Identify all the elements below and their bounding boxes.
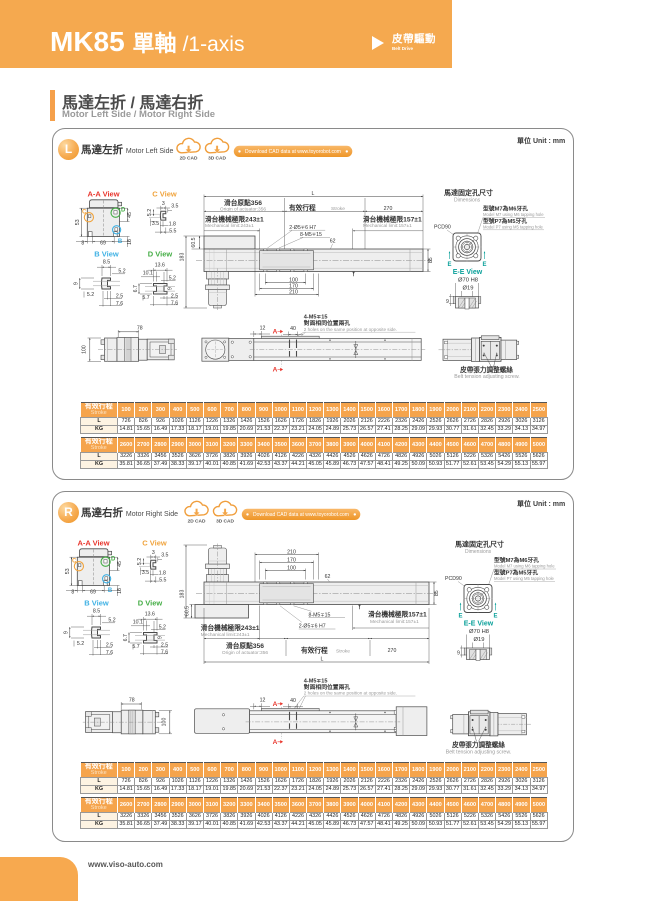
svg-text:5.5: 5.5 (169, 228, 176, 234)
svg-text:Origin of actuator:356: Origin of actuator:356 (220, 207, 266, 213)
svg-text:10.1: 10.1 (143, 270, 153, 276)
svg-text:40: 40 (290, 698, 296, 704)
svg-text:85: 85 (428, 257, 434, 263)
svg-text:12: 12 (260, 698, 266, 704)
svg-text:Dimensions: Dimensions (454, 198, 481, 204)
svg-text:12: 12 (260, 325, 266, 331)
svg-text:PCD90: PCD90 (445, 576, 462, 582)
svg-text:B View: B View (94, 250, 119, 259)
svg-text:A: A (273, 739, 278, 746)
svg-text:對面相同位置兩孔: 對面相同位置兩孔 (304, 683, 351, 691)
svg-text:2-Ø5∓6 H7: 2-Ø5∓6 H7 (299, 624, 326, 630)
svg-text:85: 85 (434, 590, 440, 596)
svg-text:3D CAD: 3D CAD (208, 155, 226, 161)
svg-text:7.6: 7.6 (116, 301, 123, 307)
svg-text:78: 78 (137, 326, 143, 332)
svg-text:皮帶張力調整螺絲: 皮帶張力調整螺絲 (452, 740, 505, 749)
svg-text:E-E View: E-E View (453, 269, 483, 276)
svg-text:210: 210 (289, 289, 298, 295)
svg-text:Mechanical limit:243±1: Mechanical limit:243±1 (205, 223, 254, 229)
svg-text:2-Ø5∓6 H7: 2-Ø5∓6 H7 (289, 225, 316, 231)
svg-text:2 holes on the same position a: 2 holes on the same position at opposite… (304, 691, 397, 696)
svg-text:Ø19: Ø19 (463, 286, 474, 292)
svg-text:5.7: 5.7 (142, 295, 149, 301)
svg-text:60.5: 60.5 (191, 237, 197, 247)
svg-text:滑台原點356: 滑台原點356 (226, 641, 264, 650)
svg-text:270: 270 (384, 206, 393, 212)
svg-text:3D CAD: 3D CAD (216, 518, 234, 524)
svg-text:Belt tension adjusting screw.: Belt tension adjusting screw. (446, 749, 511, 755)
svg-text:A: A (273, 329, 278, 336)
svg-text:69: 69 (100, 241, 106, 247)
svg-text:A-A View: A-A View (87, 190, 119, 199)
svg-text:Stroke: Stroke (336, 649, 350, 655)
svg-text:L: L (321, 656, 324, 662)
svg-text:滑台機械極限157±1: 滑台機械極限157±1 (368, 610, 427, 619)
svg-text:3: 3 (162, 201, 165, 207)
svg-text:Download CAD data at www.toyor: Download CAD data at www.toyorobot.com (253, 512, 349, 518)
svg-text:C View: C View (152, 190, 177, 199)
svg-text:1.8: 1.8 (169, 221, 176, 227)
svg-text:Dimensions: Dimensions (465, 549, 492, 555)
svg-text:Model M7 using M6 tapping hole: Model M7 using M6 tapping hole (494, 564, 555, 569)
svg-text:6.7: 6.7 (133, 285, 139, 292)
svg-text:2 holes on the same position a: 2 holes on the same position at opposite… (304, 327, 397, 332)
svg-text:有效行程: 有效行程 (301, 646, 328, 655)
svg-text:Belt tension adjusting screw.: Belt tension adjusting screw. (454, 374, 519, 380)
svg-text:E: E (458, 614, 462, 620)
svg-text:3.5: 3.5 (171, 203, 178, 209)
svg-text:Download CAD data at www.toyor: Download CAD data at www.toyorobot.com (245, 149, 341, 155)
svg-text:2D CAD: 2D CAD (188, 518, 206, 524)
svg-text:Stroke: Stroke (331, 206, 345, 212)
svg-text:2.5: 2.5 (171, 294, 178, 300)
svg-text:Model P7 using M5 tapping hole: Model P7 using M5 tapping hole (494, 576, 554, 581)
svg-text:183: 183 (179, 253, 185, 262)
svg-text:對面相同位置兩孔: 對面相同位置兩孔 (304, 319, 351, 327)
svg-text:9: 9 (457, 651, 460, 657)
svg-text:滑台原點356: 滑台原點356 (224, 198, 262, 207)
svg-text:4-M5∓15: 4-M5∓15 (304, 315, 328, 321)
svg-text:270: 270 (388, 648, 397, 654)
svg-text:Mechanical limit:157±1: Mechanical limit:157±1 (363, 223, 412, 229)
svg-text:210: 210 (287, 549, 296, 555)
svg-text:Model P7 using M5 tapping hole: Model P7 using M5 tapping hole (483, 224, 543, 229)
svg-text:8-M5∓15: 8-M5∓15 (309, 612, 331, 618)
svg-text:13.6: 13.6 (155, 263, 165, 269)
svg-text:7.6: 7.6 (171, 301, 178, 307)
svg-text:60.5: 60.5 (185, 606, 191, 616)
svg-text:8: 8 (81, 241, 84, 247)
svg-text:D View: D View (148, 250, 173, 259)
svg-text:62: 62 (330, 238, 336, 244)
svg-text:滑台機械極限243±1: 滑台機械極限243±1 (201, 623, 260, 632)
svg-text:B: B (118, 239, 123, 245)
svg-text:馬達固定孔尺寸: 馬達固定孔尺寸 (444, 188, 493, 197)
svg-text:183: 183 (179, 590, 185, 599)
svg-text:馬達固定孔尺寸: 馬達固定孔尺寸 (455, 540, 504, 549)
svg-text:5.2: 5.2 (87, 292, 94, 298)
svg-text:Mechanical limit:243±1: Mechanical limit:243±1 (201, 632, 250, 638)
svg-text:100: 100 (287, 565, 296, 571)
svg-text:18: 18 (127, 239, 133, 245)
svg-text:Model M7 using M6 tapping hole: Model M7 using M6 tapping hole (483, 212, 544, 217)
svg-text:Ø70 H8: Ø70 H8 (458, 278, 478, 284)
svg-text:4-M5∓15: 4-M5∓15 (304, 678, 328, 684)
svg-text:E: E (482, 262, 486, 268)
svg-text:E: E (493, 614, 497, 620)
svg-text:9: 9 (446, 299, 449, 305)
svg-text:PCD90: PCD90 (434, 225, 451, 231)
svg-text:78: 78 (129, 698, 135, 704)
svg-text:100: 100 (82, 345, 88, 354)
svg-text:滑台機械極限243±1: 滑台機械極限243±1 (205, 214, 264, 223)
svg-text:Mechanical limit:157±1: Mechanical limit:157±1 (370, 619, 419, 625)
svg-text:Origin of actuator:356: Origin of actuator:356 (222, 650, 268, 656)
svg-text:Ø19: Ø19 (474, 637, 485, 643)
svg-text:170: 170 (287, 557, 296, 563)
svg-text:45: 45 (127, 212, 133, 218)
svg-text:2D CAD: 2D CAD (180, 155, 198, 161)
svg-text:L: L (312, 191, 315, 197)
svg-text:滑台機械極限157±1: 滑台機械極限157±1 (363, 214, 422, 223)
svg-text:100: 100 (162, 718, 168, 727)
svg-text:A: A (273, 367, 278, 374)
svg-text:9: 9 (168, 287, 174, 290)
svg-text:Ø70 H8: Ø70 H8 (469, 629, 489, 635)
svg-text:5.2: 5.2 (147, 209, 153, 216)
svg-text:E-E View: E-E View (464, 621, 494, 628)
svg-text:8.5: 8.5 (103, 260, 110, 266)
svg-text:有效行程: 有效行程 (289, 203, 316, 212)
svg-text:8-M5∓15: 8-M5∓15 (300, 232, 322, 238)
svg-text:53: 53 (75, 219, 81, 225)
svg-text:2.5: 2.5 (116, 294, 123, 300)
svg-text:皮帶張力調整螺絲: 皮帶張力調整螺絲 (460, 365, 513, 374)
svg-text:E: E (447, 262, 451, 268)
svg-text:A: A (273, 701, 278, 708)
svg-text:9: 9 (74, 282, 80, 285)
svg-text:40: 40 (290, 326, 296, 332)
svg-text:C: C (82, 210, 87, 216)
